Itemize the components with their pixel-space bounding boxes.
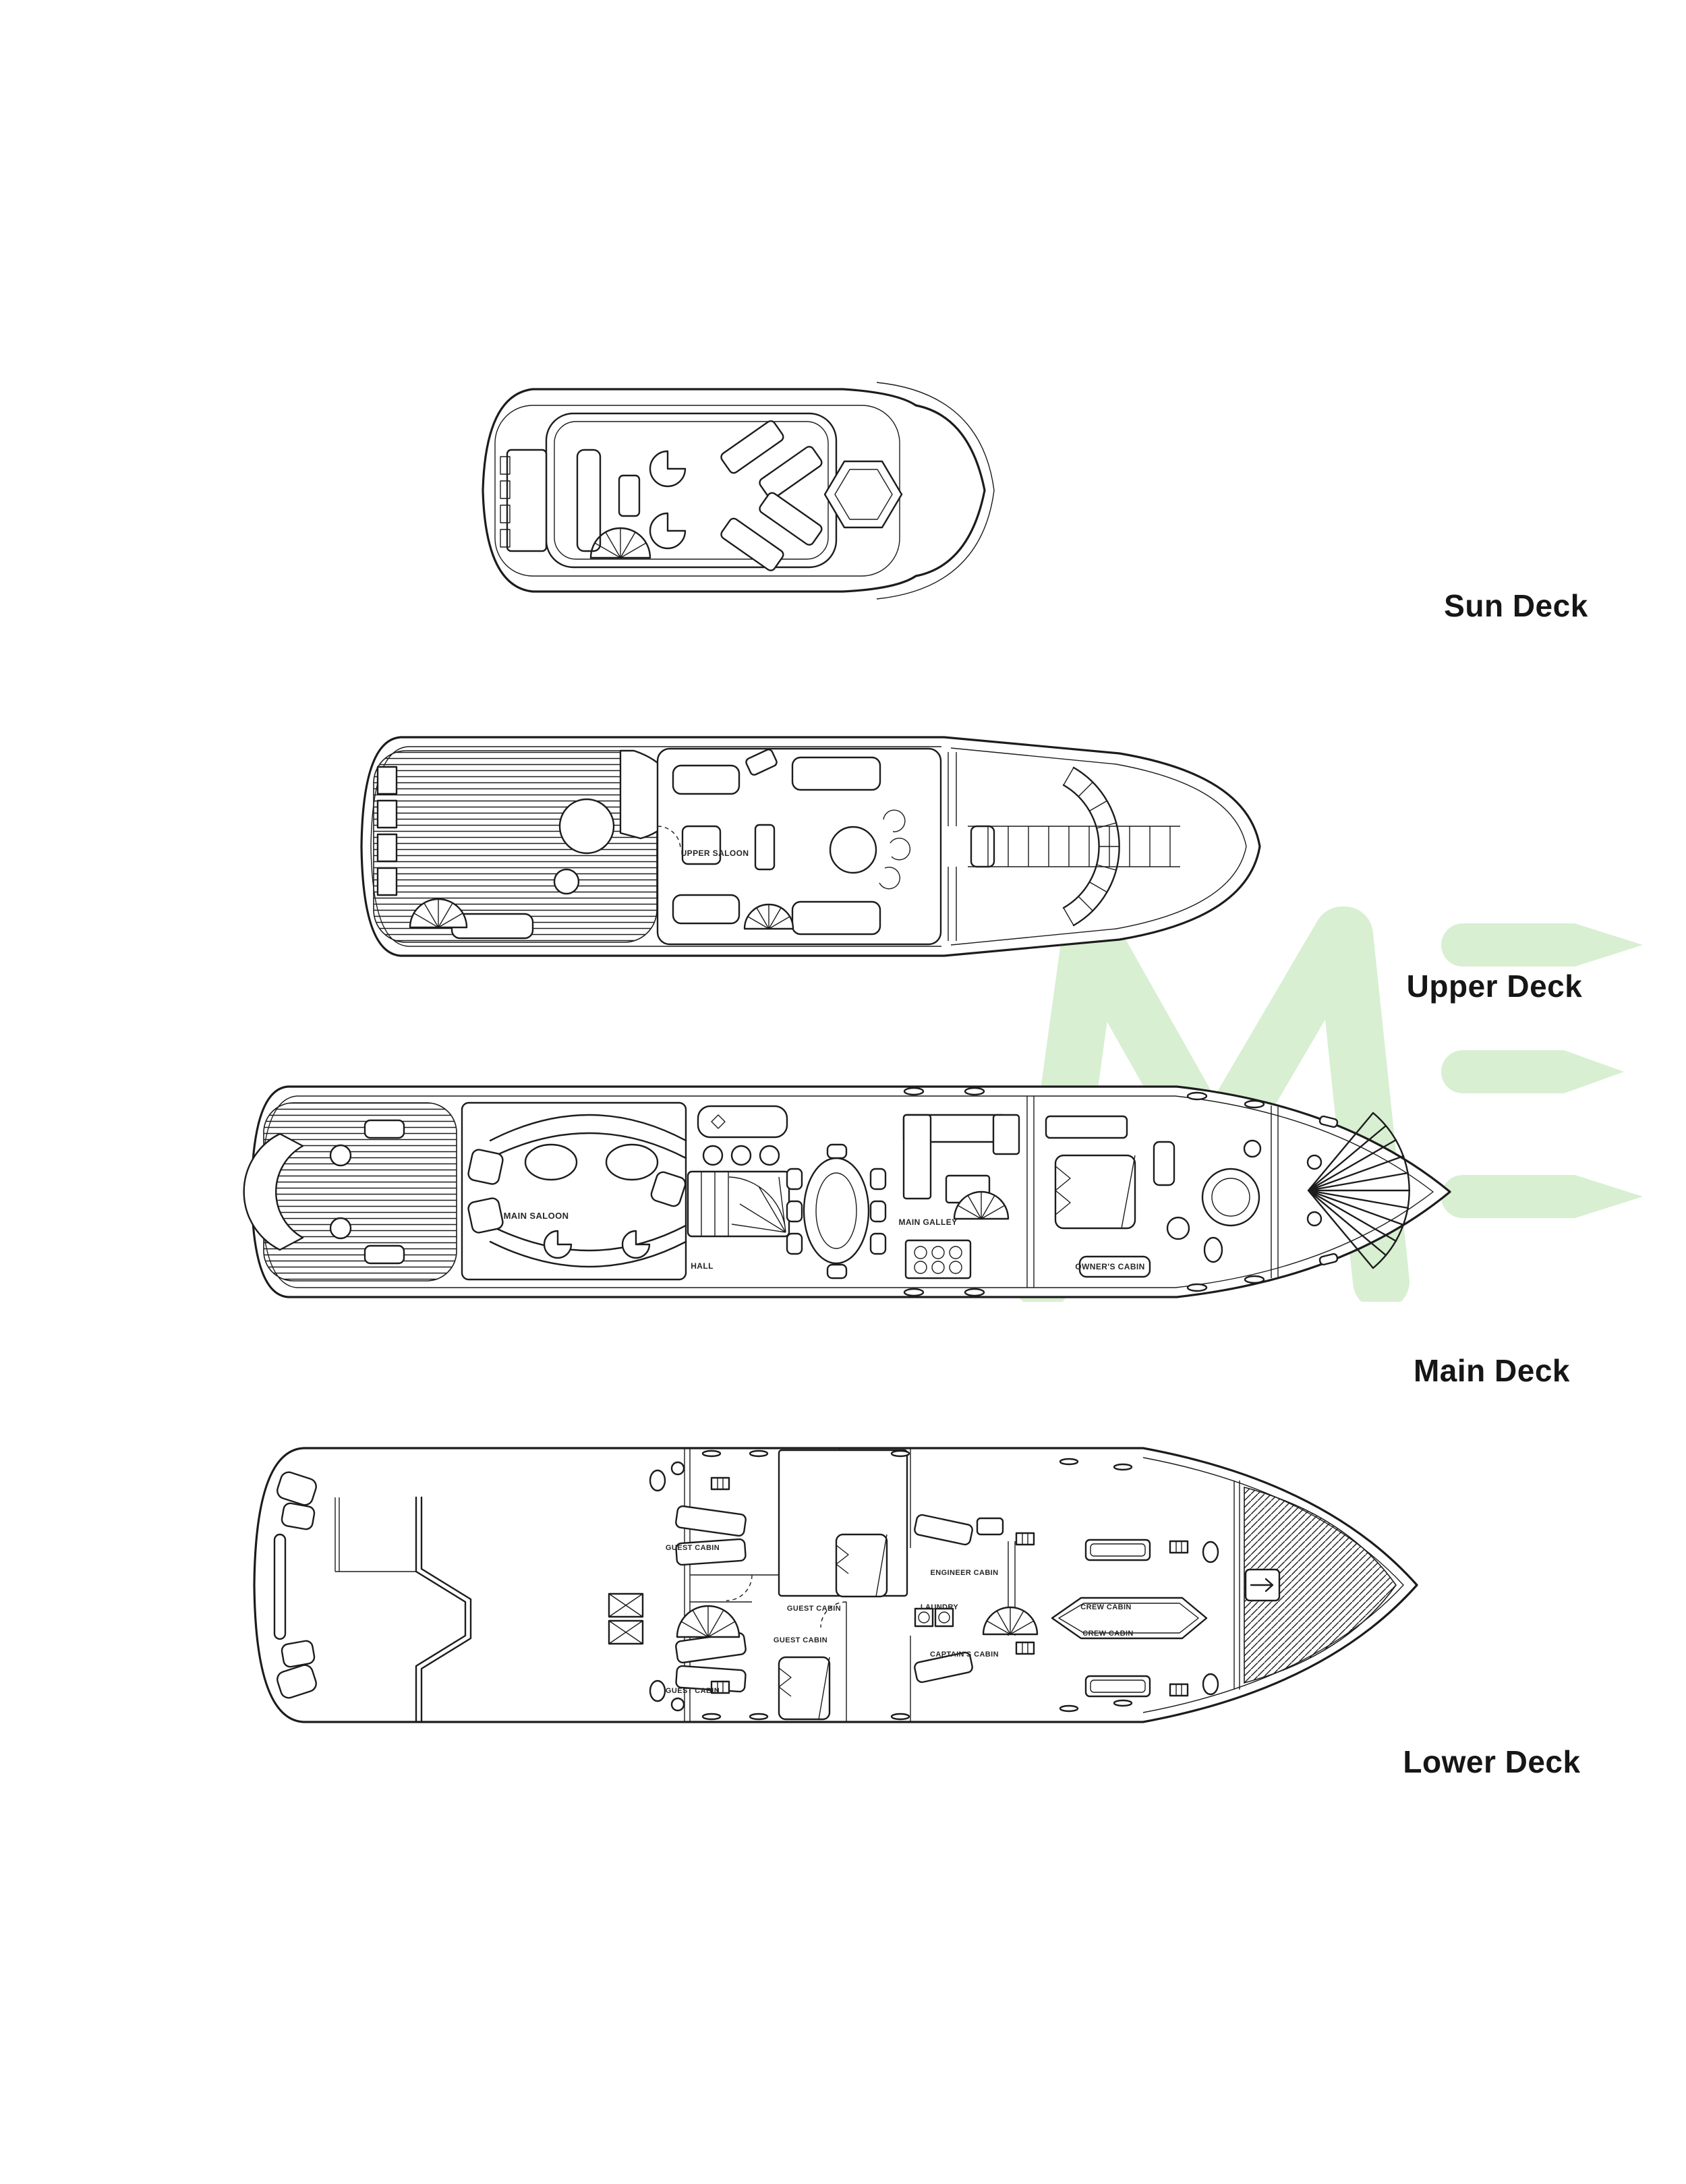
deck-label-lower-deck: Lower Deck [1403, 1744, 1580, 1780]
main-deck-hall [688, 1106, 789, 1236]
room-label-crew-cabin-1: CREW CABIN [1080, 1603, 1132, 1611]
room-label-guest-cabin-1: GUEST CABIN [666, 1544, 720, 1552]
sun-deck-bar [500, 450, 546, 551]
lower-deck-plan: GUEST CABIN GUEST CABIN GUEST CABIN GUES… [239, 1440, 1423, 1730]
upper-deck-plan: UPPER SALOON [351, 725, 1268, 968]
room-label-engineer-cabin: ENGINEER CABIN [931, 1569, 999, 1577]
room-label-upper-saloon: UPPER SALOON [681, 849, 749, 858]
room-label-captains-cabin: CAPTAIN'S CABIN [930, 1650, 999, 1659]
deck-label-upper-deck: Upper Deck [1407, 968, 1583, 1004]
deck-label-sun-deck: Sun Deck [1444, 587, 1588, 624]
main-deck-aft-deck [244, 1103, 457, 1281]
upper-deck-sky-lounge [658, 748, 941, 944]
main-deck-plan: MAIN SALOON HALL MAIN GALLEY [239, 1076, 1460, 1305]
room-label-guest-cabin-2: GUEST CABIN [787, 1605, 841, 1613]
room-label-main-saloon: MAIN SALOON [504, 1211, 569, 1221]
room-label-crew-cabin-2: CREW CABIN [1082, 1630, 1134, 1638]
sun-deck-side-table [619, 476, 639, 516]
main-deck-saloon [462, 1103, 687, 1280]
deck-label-main-deck: Main Deck [1414, 1352, 1570, 1389]
room-label-laundry: LAUNDRY [921, 1603, 958, 1611]
sun-deck-plan [465, 374, 998, 607]
room-label-owners-cabin: OWNER'S CABIN [1075, 1262, 1144, 1271]
room-label-guest-cabin-4: GUEST CABIN [666, 1687, 720, 1695]
room-label-hall: HALL [691, 1261, 714, 1271]
room-label-main-galley: MAIN GALLEY [898, 1217, 957, 1227]
room-label-guest-cabin-3: GUEST CABIN [774, 1636, 827, 1644]
sun-deck-bench [577, 450, 600, 551]
